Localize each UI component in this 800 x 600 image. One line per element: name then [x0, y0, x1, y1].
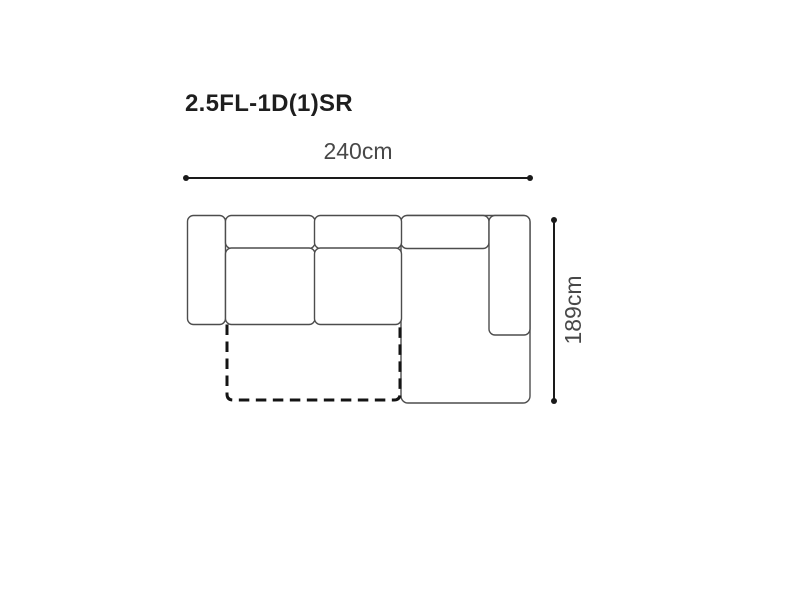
back-cushion-right	[401, 216, 489, 249]
back-cushion-left	[226, 216, 316, 249]
depth-dimension-line	[551, 217, 557, 404]
model-code-title: 2.5FL-1D(1)SR	[185, 90, 353, 118]
right-armrest	[489, 216, 530, 336]
pullout-footprint-dashed	[227, 325, 400, 401]
width-dimension-line	[183, 175, 533, 181]
depth-dimension-label: 189cm	[560, 220, 586, 400]
width-dimension-dot-left	[183, 175, 189, 181]
sofa-dimension-drawing	[0, 0, 800, 600]
dimension-diagram-page: 2.5FL-1D(1)SR 240cm 189cm	[0, 0, 800, 600]
left-armrest	[188, 216, 226, 325]
width-dimension-dot-right	[527, 175, 533, 181]
width-dimension-label: 240cm	[185, 138, 531, 165]
seat-cushion-middle	[315, 248, 402, 325]
sofa-outline	[188, 216, 531, 404]
seat-cushion-left	[226, 248, 316, 325]
depth-dimension-dot-top	[551, 217, 557, 223]
back-cushion-middle	[315, 216, 402, 249]
depth-dimension-dot-bottom	[551, 398, 557, 404]
